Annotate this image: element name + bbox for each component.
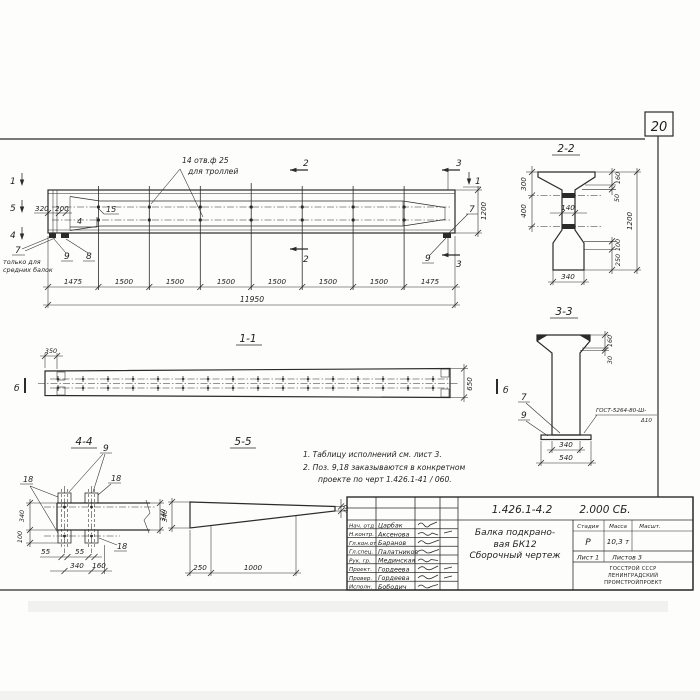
pos-label-18-a: 18 <box>20 475 58 533</box>
pos-label-7-right: 7 <box>449 205 478 233</box>
plan-outline <box>45 369 450 398</box>
dim-340-section22: 340 <box>561 272 575 281</box>
dim-1200-section: 1200 <box>625 211 634 230</box>
svg-text:1: 1 <box>475 177 481 187</box>
dim-40: 40 <box>342 505 350 513</box>
pos-7-note-2: средних балок <box>3 266 53 274</box>
mass-value: 10,3 т <box>607 537 630 546</box>
stage-value: Р <box>585 538 591 548</box>
bearing-tab-right <box>443 233 451 238</box>
row-role: Гл.спец. <box>349 550 373 556</box>
sheet-number: 20 <box>651 120 668 135</box>
holes-note-line2: для троллей <box>187 167 238 176</box>
section-4-4: 4-4 9 18 <box>16 436 169 574</box>
pos-7-note-1: только для <box>3 258 41 266</box>
dim-50: 50 <box>613 194 621 202</box>
header-mass: Масса <box>609 524 627 530</box>
section-2-2: 2-2 140 300 400 160 50 100 250 1200 <box>519 143 641 285</box>
row-role: Рук. гр. <box>349 558 371 564</box>
beam-recess <box>70 197 445 231</box>
dim-160-s44: 160 <box>92 561 106 570</box>
svg-text:9: 9 <box>425 254 431 264</box>
view-marker-b-left: б <box>14 378 25 394</box>
row-name: Царбак <box>378 522 403 530</box>
cut-marker-5-left: 5 <box>10 200 24 214</box>
pos-label-18-b: 18 <box>98 474 121 495</box>
section-5-5-title: 5-5 <box>234 436 251 448</box>
svg-text:18: 18 <box>111 474 121 483</box>
svg-text:2: 2 <box>303 159 309 169</box>
svg-text:9: 9 <box>521 411 527 421</box>
dim-340-s33: 340 <box>559 440 573 449</box>
row-name: Мединская <box>378 557 415 565</box>
dim-250: 250 <box>193 563 207 572</box>
section-3-3-title: 3-3 <box>555 306 572 318</box>
sheets-label: Листов 3 <box>611 554 642 562</box>
pos-label-8: 8 <box>66 239 95 262</box>
section-2-2-shape <box>538 172 595 270</box>
elevation-view: 14 отв.ф 25 для троллей 2 2 3 3 1 5 <box>3 156 488 308</box>
svg-text:5: 5 <box>10 204 16 214</box>
taper-plate-shape <box>190 502 335 528</box>
dim-total: 11950 <box>240 295 264 304</box>
dim-200: 200 <box>55 204 69 213</box>
header-stage: Стадия <box>577 524 599 530</box>
svg-text:1475: 1475 <box>64 277 83 286</box>
sheet-label: Лист 1 <box>576 554 599 562</box>
svg-text:1500: 1500 <box>217 277 236 286</box>
dim-30: 30 <box>606 356 614 364</box>
cut-marker-1-left: 1 <box>10 173 24 187</box>
dim-1000: 1000 <box>244 563 263 572</box>
section-3-3: 3-3 160 30 7 9 ГОСТ-5264-80-Ш- Δ10 <box>518 306 657 466</box>
row-name: Баранов <box>378 539 406 547</box>
svg-text:1: 1 <box>10 177 16 187</box>
pos-label-9-s44: 9 <box>69 444 112 492</box>
pos-label-9-s33: 9 <box>518 411 548 436</box>
dim-340-s55: 340 <box>159 509 167 521</box>
row-role: Нач. отд <box>349 523 374 529</box>
stage-mass-scale: Стадия Масса Масшт. Р 10,3 т Лист 1 Лист… <box>573 520 693 590</box>
svg-text:9: 9 <box>64 252 70 262</box>
svg-text:4: 4 <box>77 217 82 226</box>
dim-540: 540 <box>559 453 573 462</box>
drawing-title-2: вая БК12 <box>493 540 536 550</box>
dim-1200: 1200 <box>479 201 488 220</box>
svg-text:1475: 1475 <box>421 277 440 286</box>
row-role: Провер. <box>349 576 372 582</box>
row-role: Н.контр. <box>349 532 374 538</box>
weld-note: ГОСТ-5264-80-Ш- Δ10 <box>584 408 657 433</box>
org-line-2: ЛЕНИНГРАДСКИЙ <box>608 572 658 579</box>
dim-650: 650 <box>465 377 474 391</box>
pos-label-7-left: 7 только для средних балок <box>3 237 55 274</box>
signature-rows: Нач. отд Царбак Н.контр. Аксенова Гл.кон… <box>349 522 452 591</box>
svg-text:4: 4 <box>10 231 16 241</box>
cut-marker-4-left: 4 <box>10 227 24 241</box>
org-line-3: ПРОМСТРОЙПРОЕКТ <box>604 579 662 586</box>
svg-text:9: 9 <box>103 444 109 454</box>
dim-55-a: 55 <box>41 547 51 556</box>
note-line-2: 2. Поз. 9,18 заказываются в конкретном <box>303 463 465 472</box>
bearing-tab-left-2 <box>61 233 69 238</box>
svg-text:1500: 1500 <box>166 277 185 286</box>
cut-marker-2-bottom: 2 <box>290 247 309 265</box>
dim-160: 160 <box>614 172 622 184</box>
svg-text:18: 18 <box>23 475 33 484</box>
dim-340-s44-bottom: 340 <box>70 561 84 570</box>
dim-140: 140 <box>561 203 575 212</box>
svg-text:б: б <box>503 386 509 396</box>
section-1-1: 1-1 350 650 б б <box>14 333 509 402</box>
svg-text:7: 7 <box>521 393 527 403</box>
drawing-sheet: 20 <box>0 0 700 700</box>
doc-code: 2.000 СБ. <box>579 504 630 516</box>
svg-text:1500: 1500 <box>370 277 389 286</box>
holes-note-line1: 14 отв.ф 25 <box>182 156 229 165</box>
dim-160-s33: 160 <box>606 335 614 347</box>
svg-text:1500: 1500 <box>319 277 338 286</box>
svg-text:б: б <box>14 384 20 394</box>
weld-note-line2: Δ10 <box>640 418 652 424</box>
pos-label-9-right: 9 <box>422 238 446 264</box>
section-1-1-title: 1-1 <box>239 333 256 345</box>
cut-marker-4-inner: 4 <box>70 217 97 227</box>
dim-100: 100 <box>614 239 622 251</box>
sheet-frame: 20 <box>0 112 700 700</box>
doc-number: 1.426.1-4.2 <box>492 504 553 516</box>
base-plate <box>541 435 591 440</box>
org-line-1: ГОССТРОЙ СССР <box>610 565 657 572</box>
drawing-title-1: Балка подкрано- <box>475 528 555 538</box>
cut-marker-1-right: 1 <box>463 172 481 187</box>
svg-text:8: 8 <box>86 252 92 262</box>
title-block: Нач. отд Царбак Н.контр. Аксенова Гл.кон… <box>347 497 693 591</box>
svg-text:2: 2 <box>303 255 309 265</box>
dim-100-s44: 100 <box>16 531 24 543</box>
section-2-2-title: 2-2 <box>557 143 574 155</box>
pos-label-15: 15 <box>98 205 119 214</box>
view-marker-b-right: б <box>497 379 509 396</box>
drawing-title-3: Сборочный чертеж <box>469 551 561 561</box>
dim-400: 400 <box>519 204 528 218</box>
svg-text:7: 7 <box>469 205 475 215</box>
dim-300: 300 <box>519 177 528 191</box>
row-role: Проект. <box>349 567 372 573</box>
section-4-4-title: 4-4 <box>75 436 92 448</box>
row-name: Гордеева <box>378 565 410 573</box>
svg-text:7: 7 <box>15 246 21 256</box>
cut-marker-3-top: 3 <box>442 159 462 190</box>
notes: 1. Таблицу исполнений см. лист 3. 2. Поз… <box>303 450 465 484</box>
row-name: Аксенова <box>377 530 410 538</box>
svg-text:15: 15 <box>106 205 116 214</box>
dim-250: 250 <box>614 254 622 266</box>
dim-55-b: 55 <box>75 547 85 556</box>
row-name: Гордеева <box>378 574 410 582</box>
svg-text:18: 18 <box>117 542 127 551</box>
note-line-1: 1. Таблицу исполнений см. лист 3. <box>303 450 442 459</box>
row-name: Палатников <box>378 548 419 556</box>
cut-marker-3-bottom: 3 <box>442 233 462 270</box>
header-scale: Масшт. <box>639 524 661 530</box>
row-name: Бободич <box>378 583 407 591</box>
svg-text:1500: 1500 <box>115 277 134 286</box>
hole-column-lines <box>98 183 404 290</box>
row-role: Исполн. <box>349 585 373 591</box>
dim-340-s44-left: 340 <box>18 510 26 522</box>
svg-text:3: 3 <box>456 159 462 169</box>
pos-label-9-left: 9 <box>54 239 73 262</box>
weld-note-line1: ГОСТ-5264-80-Ш- <box>596 408 646 414</box>
s44-bottom-dims: 55 55 340 160 <box>40 545 112 574</box>
dim-320: 320 <box>35 204 49 213</box>
dim-350: 350 <box>45 347 57 355</box>
row-role: Гл.кон.от <box>349 541 377 547</box>
cut-marker-2-top: 2 <box>290 159 309 172</box>
svg-text:1500: 1500 <box>268 277 287 286</box>
pos-label-18-c: 18 <box>99 538 127 551</box>
note-line-3: проекте по черт 1.426.1-41 / 060. <box>318 475 452 484</box>
svg-text:3: 3 <box>456 260 462 270</box>
